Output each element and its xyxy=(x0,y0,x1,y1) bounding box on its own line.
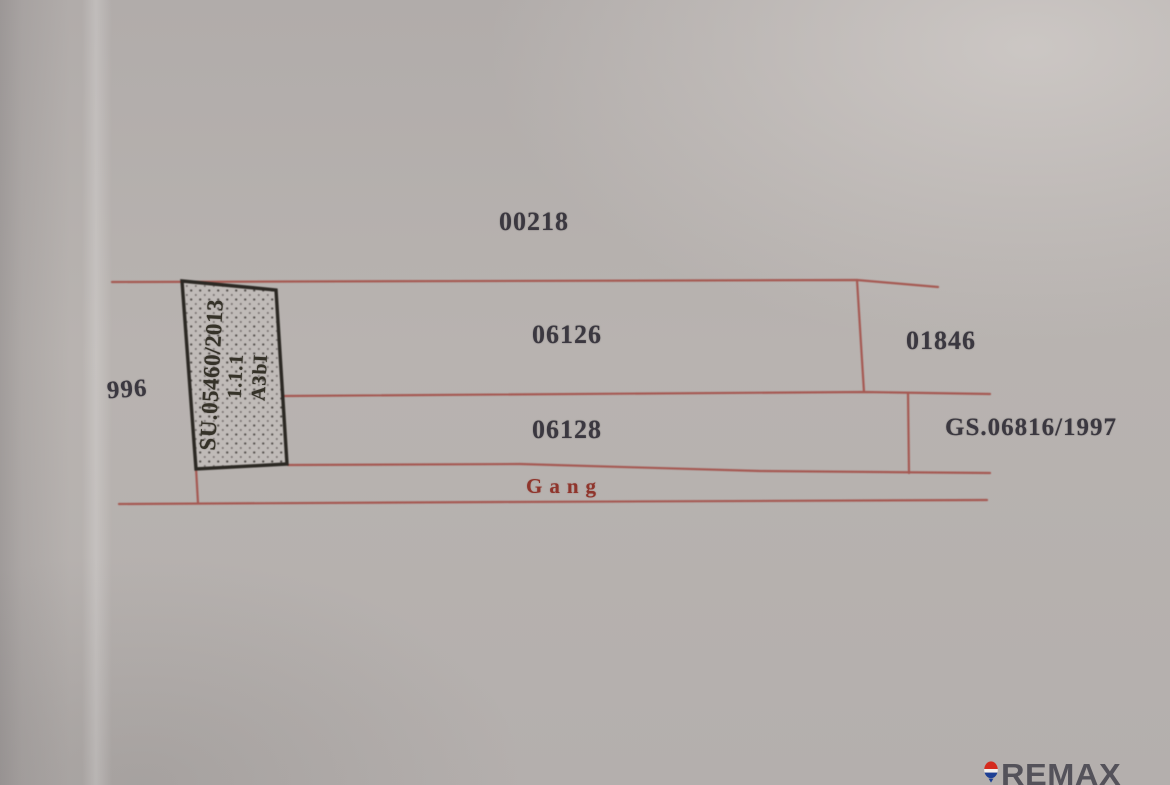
parcel-number-left: 996 xyxy=(106,375,148,406)
scanned-cadastral-sketch: 00218 06126 01846 996 06128 GS.06816/199… xyxy=(0,0,1170,785)
watermark-brand-text: REMAX xyxy=(1001,760,1121,785)
parcel-number-lower: 06128 xyxy=(532,415,602,445)
parcel-number-upper-right: 01846 xyxy=(906,326,976,356)
parcel-number-upper: 06126 xyxy=(532,320,602,350)
grant-number-right: GS.06816/1997 xyxy=(945,414,1117,442)
watermark: REMAX xyxy=(983,760,1115,785)
lane-label: Gang xyxy=(526,474,603,499)
survey-block-text: SU.05460/2013 1.1.1 A3bI xyxy=(192,269,277,483)
parcel-number-top: 00218 xyxy=(499,207,569,237)
parcel-boundaries-drawing xyxy=(0,0,1170,785)
remax-balloon-icon xyxy=(983,761,999,785)
